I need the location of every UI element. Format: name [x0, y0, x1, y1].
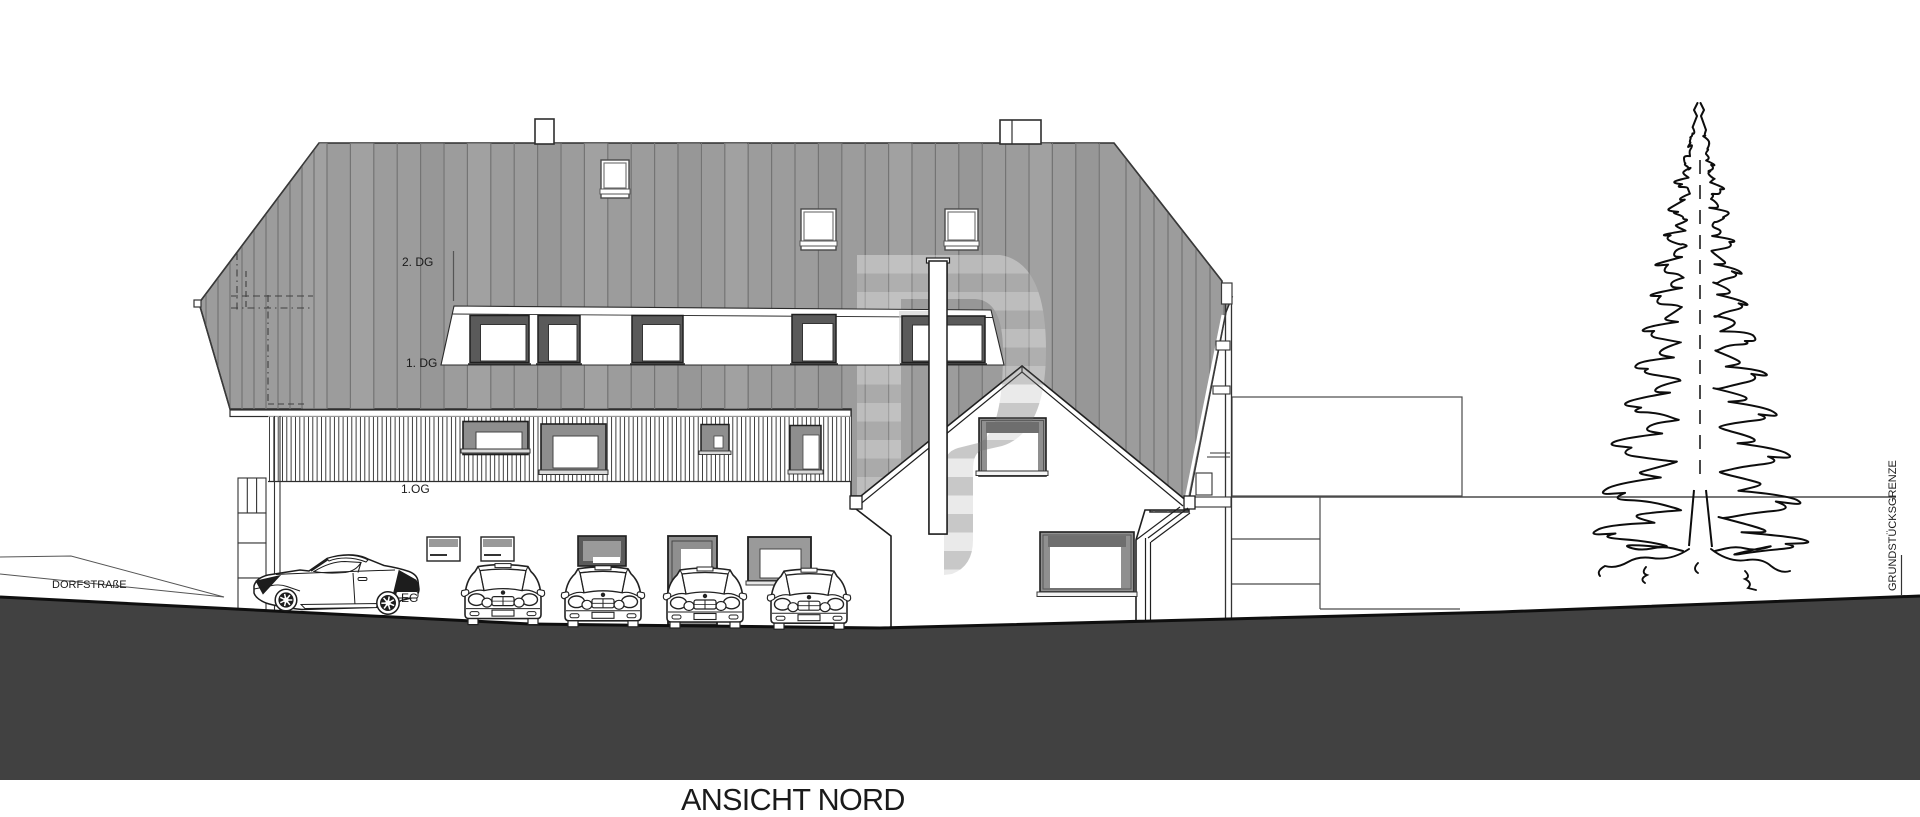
- svg-text:ANSICHT NORD: ANSICHT NORD: [681, 783, 905, 817]
- svg-text:1.OG: 1.OG: [401, 482, 430, 496]
- svg-text:DORFSTRAßE: DORFSTRAßE: [52, 579, 127, 591]
- svg-text:GRUNDSTÜCKSGRENZE: GRUNDSTÜCKSGRENZE: [1887, 460, 1899, 591]
- svg-text:1. DG: 1. DG: [406, 356, 437, 370]
- svg-text:EG: EG: [401, 591, 418, 605]
- svg-text:2. DG: 2. DG: [402, 255, 433, 269]
